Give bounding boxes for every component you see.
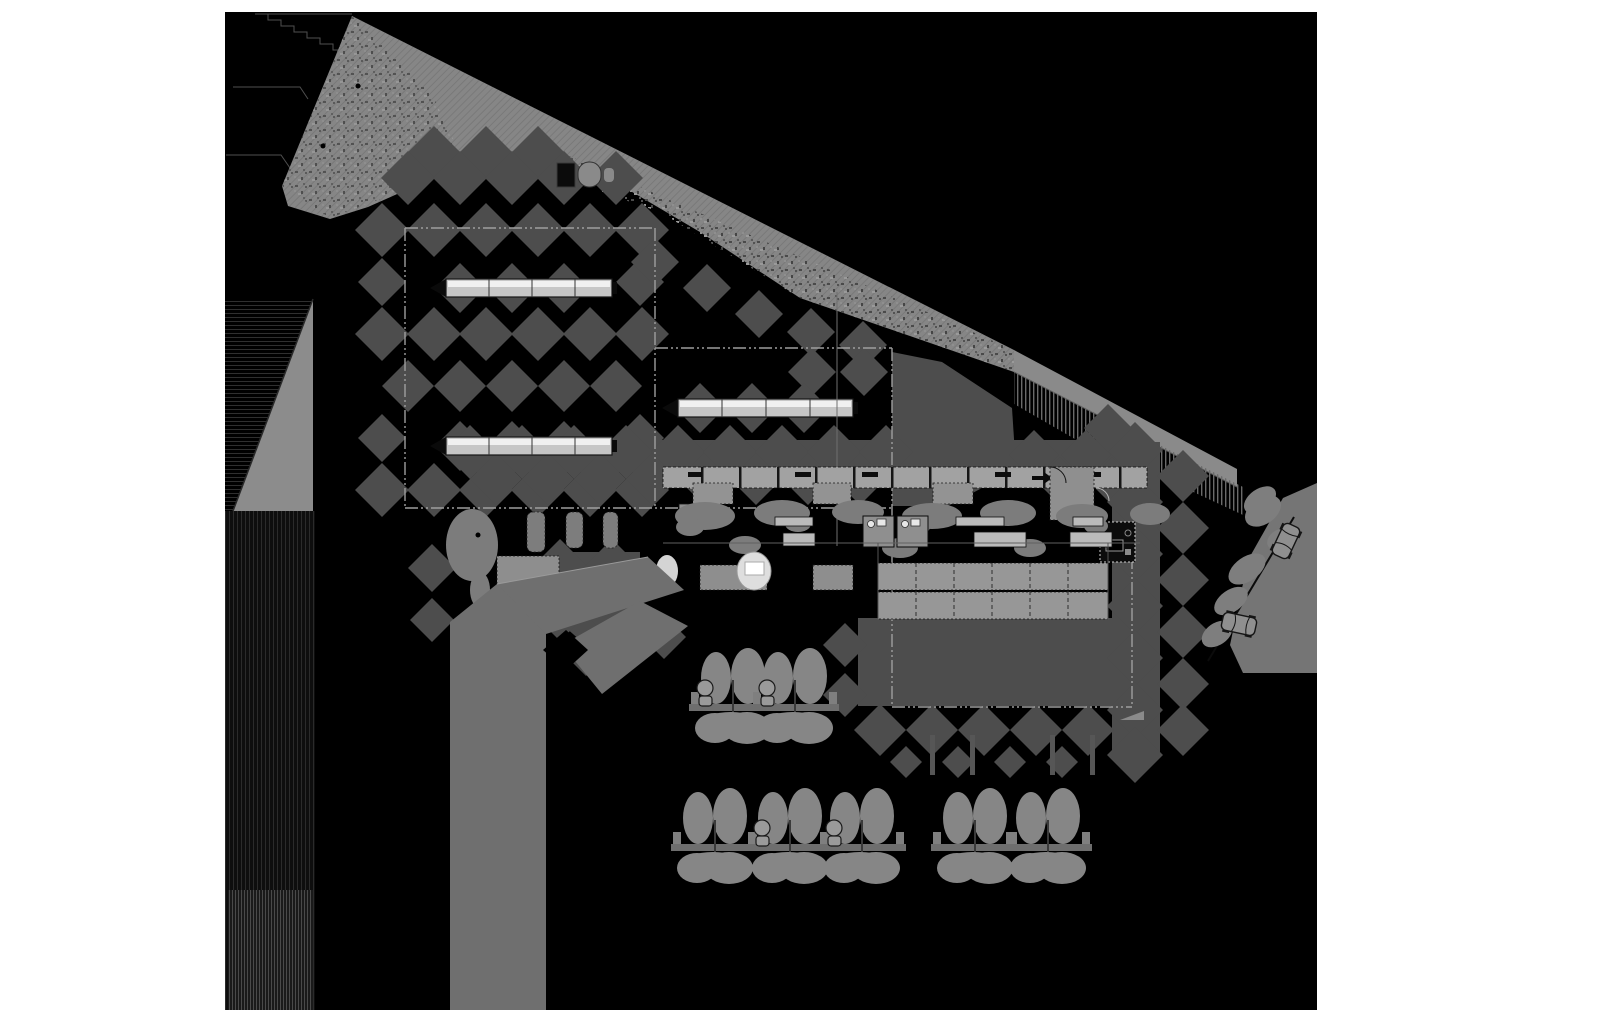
tree-trunk-dot: [356, 84, 361, 89]
table: [1070, 532, 1112, 547]
corridor-wall-tick: [891, 467, 894, 488]
pergola-bar-nub: [612, 282, 617, 294]
pergola-bar-stripe: [448, 439, 610, 445]
scooter-icon: [697, 680, 713, 696]
scooter-icon: [754, 820, 770, 836]
white-pavilion-roof: [745, 562, 764, 575]
corridor-wall-tick: [929, 467, 932, 488]
pergola-bar-stripe: [448, 281, 610, 287]
scooter-icon: [820, 832, 828, 846]
scooter-icon: [896, 832, 904, 846]
bollard-post: [970, 735, 975, 775]
kiosk-block: [557, 163, 575, 187]
plant-shape: [713, 788, 747, 844]
table: [956, 517, 1004, 526]
plant-shape: [788, 788, 822, 844]
tree-trunk-dot: [321, 144, 326, 149]
tree-trunk-dot: [476, 533, 481, 538]
scooter-icon: [826, 820, 842, 836]
sink-fixture: [877, 519, 886, 526]
corridor-label-mark: [795, 472, 811, 477]
corridor-wall-tick: [1005, 467, 1008, 488]
plant-shape: [701, 712, 761, 736]
plant-shape: [1016, 792, 1046, 844]
planter: [527, 512, 545, 552]
plant-shape: [683, 852, 743, 876]
tree-trunk-dot: [701, 250, 706, 255]
bollard-post: [1050, 735, 1055, 775]
tree-canopy: [729, 536, 761, 554]
corridor-label-mark: [688, 472, 702, 477]
scooter-icon: [748, 832, 756, 846]
corridor-wall-tick: [777, 467, 780, 488]
pergola-bar-nub: [853, 402, 858, 414]
planter: [603, 512, 618, 548]
corridor-wall-tick: [1119, 467, 1122, 488]
plant-shape: [793, 648, 827, 704]
table: [775, 517, 813, 526]
corridor-wall-tick: [739, 467, 742, 488]
room: [813, 565, 853, 590]
plant-shape: [830, 852, 890, 876]
ramp-hatch-vertical-bright: [228, 890, 313, 1010]
table: [1073, 517, 1103, 526]
page: [0, 0, 1600, 1023]
scooter-icon: [756, 836, 769, 846]
plant-shape: [933, 832, 941, 846]
room: [933, 483, 973, 504]
scooter-icon: [753, 692, 761, 706]
stall-band: [878, 563, 1108, 590]
plant-shape: [1016, 852, 1076, 876]
kiosk-round: [604, 168, 614, 182]
table: [974, 532, 1026, 547]
scooter-icon: [759, 680, 775, 696]
planter: [566, 512, 583, 548]
kiosk-round: [578, 162, 601, 187]
tree-canopy: [1130, 503, 1170, 525]
scooter-icon: [691, 692, 699, 706]
plant-shape: [943, 852, 1003, 876]
site-plan-drawing: [0, 0, 1600, 1023]
tree-mass: [858, 618, 1135, 706]
table: [783, 533, 815, 546]
bollard-post: [930, 735, 935, 775]
corridor-label-mark: [862, 472, 878, 477]
scooter-icon: [828, 836, 841, 846]
scooter-icon: [699, 696, 712, 706]
corridor-wall-tick: [853, 467, 856, 488]
sink-fixture: [911, 519, 920, 526]
pergola-bar-nub: [612, 440, 617, 452]
plant-shape: [943, 792, 973, 844]
plant-shape: [758, 852, 818, 876]
plant-shape: [1046, 788, 1080, 844]
scooter-icon: [829, 692, 837, 706]
corridor-label-mark: [995, 472, 1011, 477]
road: [450, 584, 546, 1010]
plant-shape: [860, 788, 894, 844]
plant-shape: [763, 712, 823, 736]
plant-shape: [1006, 832, 1014, 846]
plant-shape: [973, 788, 1007, 844]
toilet-fixture: [902, 521, 909, 528]
scooter-icon: [761, 696, 774, 706]
toilet-fixture: [868, 521, 875, 528]
tree-canopy: [676, 518, 704, 536]
plant-shape: [1082, 832, 1090, 846]
plan-scene: [225, 12, 1317, 1010]
tree-canopy-large: [446, 509, 498, 581]
bollard-post: [1090, 735, 1095, 775]
room: [813, 483, 851, 504]
plant-shape: [683, 792, 713, 844]
stall-band: [878, 592, 1108, 619]
chair: [1125, 549, 1131, 555]
room: [693, 483, 733, 504]
plant-shape: [673, 832, 681, 846]
